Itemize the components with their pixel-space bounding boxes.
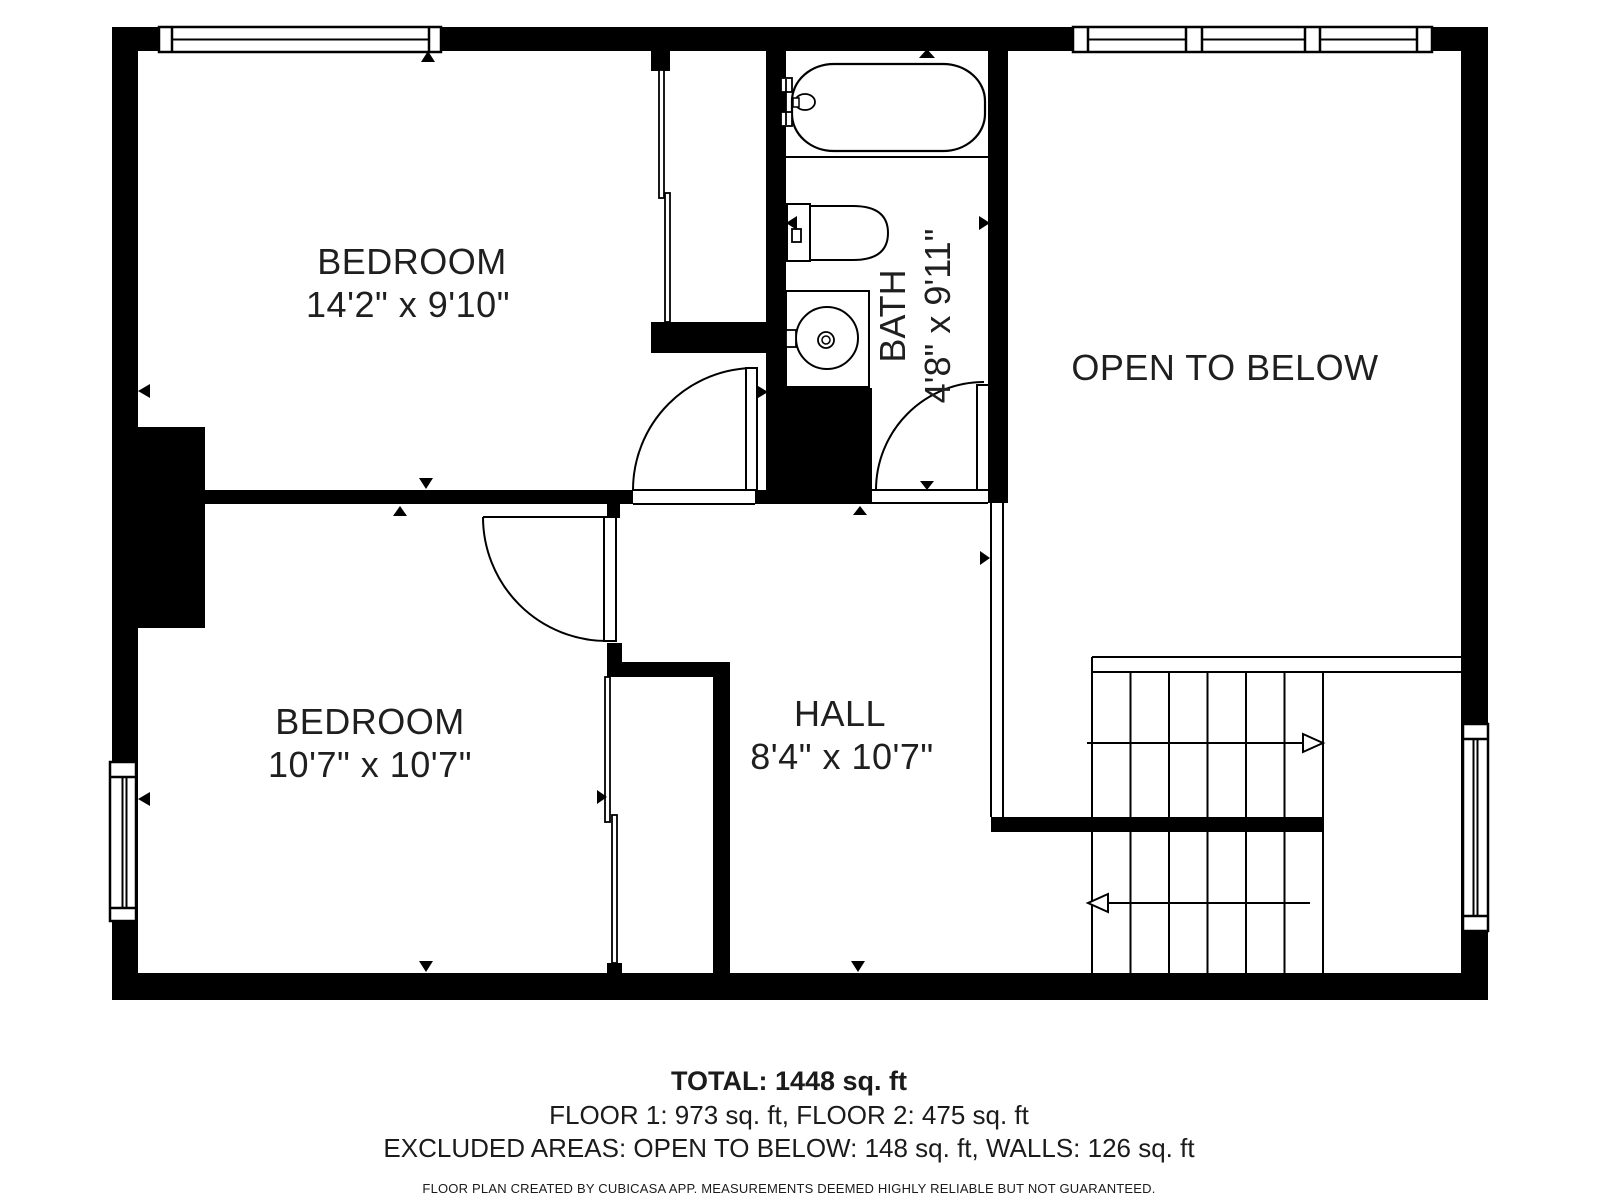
label-hall-name: HALL: [794, 693, 886, 735]
label-open-to-below: OPEN TO BELOW: [1071, 347, 1378, 389]
door-bedroom2: [483, 517, 616, 641]
wall-closet2-stub-bottom: [607, 963, 622, 977]
footer-floor-areas: FLOOR 1: 973 sq. ft, FLOOR 2: 475 sq. ft: [0, 1103, 1578, 1127]
railing-open-to-below: [991, 503, 1003, 817]
label-bedroom1-name: BEDROOM: [317, 241, 507, 283]
label-bath: BATH 4'8" x 9'11": [870, 229, 960, 404]
label-hall-dims: 8'4" x 10'7": [750, 736, 933, 778]
marker-up-hall-top: [853, 506, 867, 515]
stair-direction-arrow-up: [1087, 734, 1323, 752]
measurement-markers: [138, 49, 990, 972]
label-bedroom1-dims: 14'2" x 9'10": [306, 284, 510, 326]
bathtub-icon: [781, 64, 988, 157]
sink-icon: [786, 291, 869, 387]
marker-down-hall-bottom: [851, 961, 865, 972]
wall-bedrooms-divider: [205, 490, 633, 504]
label-bath-name: BATH: [870, 229, 915, 404]
sliding-door-closet2: [605, 677, 617, 963]
walls: [112, 27, 1488, 1000]
label-bedroom2-dims: 10'7" x 10'7": [268, 744, 472, 786]
marker-right-hall-railing: [980, 551, 990, 565]
label-bedroom2-name: BEDROOM: [275, 701, 465, 743]
label-bath-dims: 4'8" x 9'11": [915, 229, 960, 404]
wall-bedroom2-door-jamb: [607, 504, 620, 518]
footer-excluded-areas: EXCLUDED AREAS: OPEN TO BELOW: 148 sq. f…: [0, 1136, 1578, 1160]
wall-chimney-block: [138, 427, 205, 628]
wall-stair-divider: [991, 817, 1323, 832]
footer: TOTAL: 1448 sq. ft FLOOR 1: 973 sq. ft, …: [0, 1068, 1578, 1195]
wall-closet1-bottom: [651, 322, 766, 353]
wall-closet1-stub-top: [651, 51, 670, 71]
stair-direction-arrow-down: [1088, 894, 1310, 912]
wall-closet2-top: [607, 662, 730, 677]
marker-up-bedroom2-top: [393, 506, 407, 516]
stairs: [1087, 657, 1461, 973]
footer-disclaimer: FLOOR PLAN CREATED BY CUBICASA APP. MEAS…: [0, 1182, 1578, 1195]
sliding-door-closet1: [659, 70, 670, 322]
marker-down-bedroom2-bottom: [419, 961, 433, 972]
floor-plan-canvas: BEDROOM 14'2" x 9'10" BEDROOM 10'7" x 10…: [0, 0, 1600, 1200]
wall-bath-right: [988, 51, 1008, 503]
door-bedroom1: [633, 368, 757, 490]
marker-down-bath-door: [920, 481, 934, 490]
wall-closet2-right: [713, 677, 730, 977]
marker-down-bedroom1-bottom: [419, 478, 433, 489]
footer-total-area: TOTAL: 1448 sq. ft: [0, 1068, 1578, 1094]
window-bedroom1-top: [159, 27, 441, 52]
window-bedroom2-left: [110, 762, 136, 921]
wall-bottom: [112, 973, 1488, 1000]
stair-treads-upper: [1131, 672, 1285, 817]
window-landing-right: [1463, 724, 1488, 931]
window-open-below-top: [1073, 27, 1432, 52]
marker-left-bedroom2: [138, 792, 150, 806]
floor-plan-drawing: [0, 0, 1600, 1200]
marker-left-bedroom1: [138, 384, 150, 398]
